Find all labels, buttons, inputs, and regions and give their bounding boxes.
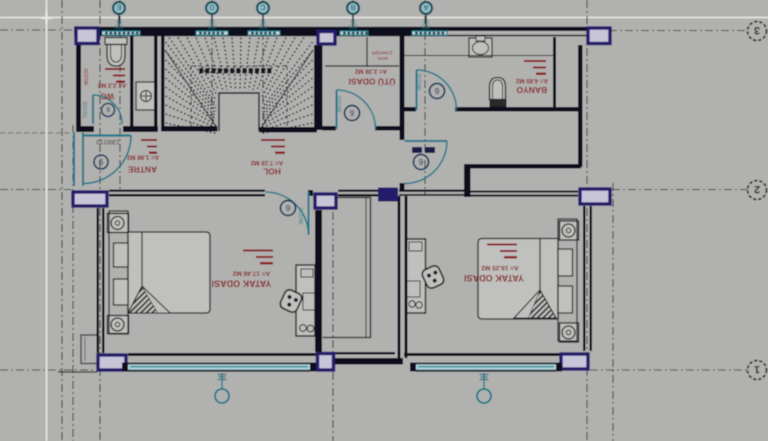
svg-text:A= 7.18 M2: A= 7.18 M2 — [250, 159, 283, 166]
svg-text:3: 3 — [754, 24, 760, 36]
svg-text:A= 2.39 M2: A= 2.39 M2 — [354, 67, 387, 74]
svg-text:BANYO: BANYO — [516, 85, 547, 95]
svg-text:A= 17.48 M2: A= 17.48 M2 — [232, 270, 270, 277]
svg-text:6: 6 — [285, 203, 290, 212]
svg-text:315: 315 — [259, 23, 268, 29]
svg-text:D: D — [209, 3, 214, 10]
svg-text:ÜTÜ ODASI: ÜTÜ ODASI — [349, 76, 396, 86]
svg-text:90/220: 90/220 — [299, 208, 305, 225]
svg-text:MAK.: MAK. — [376, 56, 387, 61]
svg-text:A= 4.85 M2: A= 4.85 M2 — [515, 77, 548, 84]
svg-text:70/220: 70/220 — [83, 102, 89, 119]
svg-text:6: 6 — [349, 108, 354, 117]
svg-text:1: 1 — [754, 363, 760, 375]
svg-text:9: 9 — [98, 157, 103, 166]
svg-text:B: B — [350, 3, 355, 10]
svg-text:A= 16.25 M2: A= 16.25 M2 — [481, 264, 519, 271]
svg-text:315: 315 — [208, 23, 217, 29]
svg-text:WC: WC — [101, 92, 115, 101]
svg-text:A: A — [423, 3, 428, 10]
svg-text:315: 315 — [115, 23, 124, 29]
svg-text:YATAK ODASI: YATAK ODASI — [464, 273, 524, 283]
svg-text:YATAK ODASI: YATAK ODASI — [212, 278, 272, 288]
svg-text:C: C — [260, 3, 265, 10]
svg-text:315: 315 — [349, 23, 358, 29]
svg-text:2: 2 — [754, 183, 760, 195]
svg-text:HOL: HOL — [263, 166, 281, 176]
svg-text:90/220: 90/220 — [84, 69, 90, 86]
svg-text:ÇAMAŞIR: ÇAMAŞIR — [371, 50, 393, 55]
svg-text:6: 6 — [418, 157, 423, 166]
svg-text:130/210: 130/210 — [96, 138, 120, 145]
svg-text:E: E — [116, 3, 121, 10]
svg-text:315: 315 — [422, 23, 431, 29]
svg-text:A= 1.88 M2: A= 1.88 M2 — [126, 153, 159, 160]
svg-text:6: 6 — [434, 86, 439, 95]
svg-text:80/220: 80/220 — [417, 74, 423, 91]
svg-text:80/220: 80/220 — [337, 96, 343, 113]
svg-text:6: 6 — [106, 105, 110, 112]
svg-text:ANTRE: ANTRE — [128, 164, 158, 174]
